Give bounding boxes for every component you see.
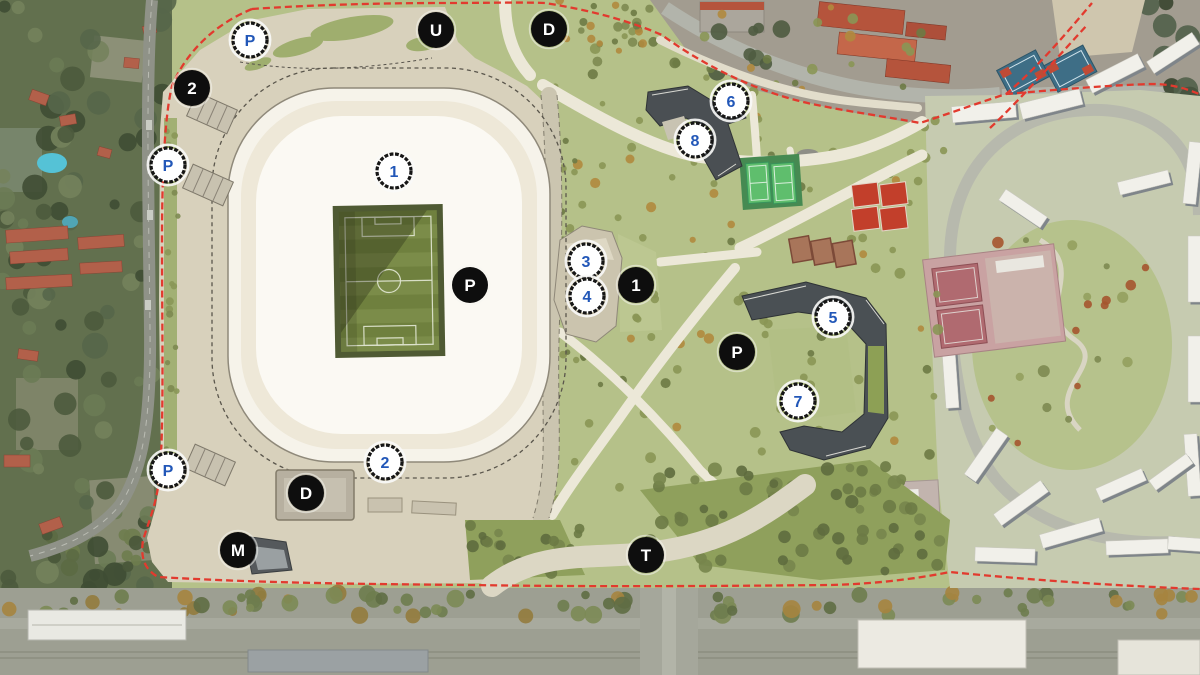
marker-p-stadium: P xyxy=(451,266,490,305)
svg-text:P: P xyxy=(245,33,256,50)
svg-text:T: T xyxy=(641,546,652,565)
marker-building-8: 8 xyxy=(675,120,715,160)
site-plan-screenshot: P2P1UD341P685P72PDMT xyxy=(0,0,1200,675)
marker-gate-2-north: 2 xyxy=(173,69,212,108)
svg-text:M: M xyxy=(231,541,245,560)
svg-text:2: 2 xyxy=(381,455,390,472)
aerial-photo-west-strip xyxy=(0,0,177,675)
svg-text:6: 6 xyxy=(727,94,736,111)
svg-text:D: D xyxy=(543,20,555,39)
masterplan-map: P2P1UD341P685P72PDMT xyxy=(0,0,1200,675)
svg-text:2: 2 xyxy=(187,79,196,98)
marker-building-4: 4 xyxy=(567,276,607,316)
marker-building-7: 7 xyxy=(778,381,818,421)
marker-gate-2-south: 2 xyxy=(365,442,405,482)
marker-u-station: U xyxy=(417,11,456,50)
marker-p-southwest: P xyxy=(148,450,188,490)
svg-text:5: 5 xyxy=(829,310,838,327)
svg-text:8: 8 xyxy=(691,133,700,150)
marker-building-6: 6 xyxy=(711,81,751,121)
marker-t-stop: T xyxy=(627,536,666,575)
svg-text:1: 1 xyxy=(390,164,399,181)
svg-text:D: D xyxy=(300,484,312,503)
svg-text:P: P xyxy=(163,158,174,175)
aerial-photo-south-strip xyxy=(0,585,1200,675)
svg-text:P: P xyxy=(163,463,174,480)
svg-text:1: 1 xyxy=(631,276,640,295)
svg-text:4: 4 xyxy=(583,289,592,306)
marker-m-station: M xyxy=(219,531,258,570)
svg-text:7: 7 xyxy=(794,394,803,411)
marker-d-north: D xyxy=(530,10,569,49)
marker-p-west: P xyxy=(148,145,188,185)
svg-text:3: 3 xyxy=(582,254,591,271)
svg-text:P: P xyxy=(731,343,742,362)
marker-d-south: D xyxy=(287,474,326,513)
marker-stadium-1: 1 xyxy=(374,151,414,191)
marker-p-park: P xyxy=(718,333,757,372)
marker-p-northwest: P xyxy=(230,20,270,60)
svg-text:P: P xyxy=(464,276,475,295)
marker-building-5: 5 xyxy=(813,297,853,337)
marker-gate-1-east: 1 xyxy=(617,266,656,305)
svg-text:U: U xyxy=(430,21,442,40)
